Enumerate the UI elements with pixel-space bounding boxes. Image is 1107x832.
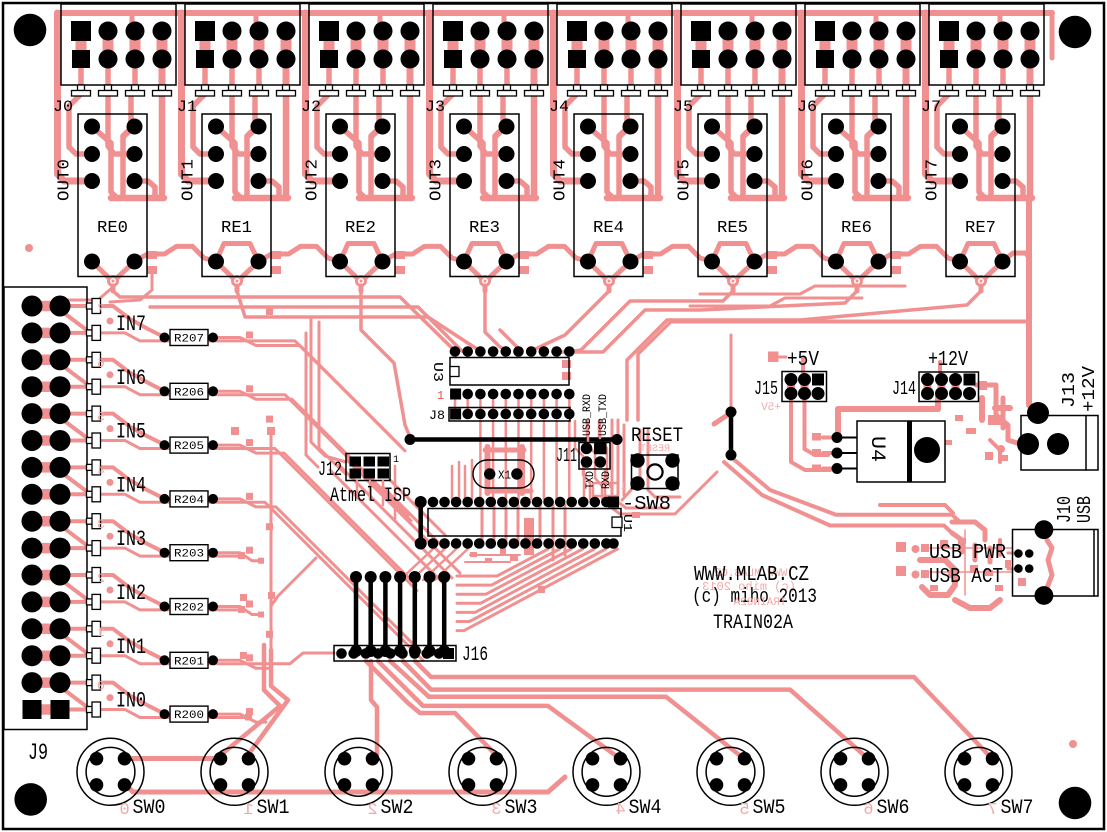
svg-text:0: 0 xyxy=(119,801,129,820)
svg-text:R204: R204 xyxy=(174,495,204,507)
svg-text:IN4: IN4 xyxy=(116,473,146,498)
svg-text:R207: R207 xyxy=(174,334,204,346)
svg-text:J15: J15 xyxy=(754,378,778,400)
svg-text:1: 1 xyxy=(243,801,253,820)
svg-text:R206: R206 xyxy=(174,387,204,399)
svg-text:TXD: TXD xyxy=(585,471,597,489)
svg-text:TRAIN02A: TRAIN02A xyxy=(733,597,786,609)
svg-text:J12: J12 xyxy=(318,459,342,482)
svg-text:RE6: RE6 xyxy=(841,219,872,238)
svg-text:+5V: +5V xyxy=(761,402,781,414)
svg-text:J0: J0 xyxy=(53,98,73,116)
svg-text:3: 3 xyxy=(491,801,501,820)
svg-text:6: 6 xyxy=(863,801,873,820)
svg-text:RESET: RESET xyxy=(640,444,670,455)
svg-text:R201: R201 xyxy=(174,656,204,668)
svg-text:R203: R203 xyxy=(174,549,204,561)
svg-text:1: 1 xyxy=(393,455,399,466)
svg-text:IN7: IN7 xyxy=(116,312,146,337)
svg-text:IN6: IN6 xyxy=(116,366,146,391)
svg-text:SW7: SW7 xyxy=(1001,797,1034,820)
svg-text:2: 2 xyxy=(367,801,377,820)
svg-text:R202: R202 xyxy=(174,603,204,615)
svg-text:R205: R205 xyxy=(174,441,204,453)
svg-text:TRAIN02A: TRAIN02A xyxy=(713,612,793,635)
svg-text:OUT4: OUT4 xyxy=(552,159,571,201)
svg-text:-SW8: -SW8 xyxy=(622,493,671,515)
svg-text:IN1: IN1 xyxy=(116,635,146,660)
svg-text:USB_TXD: USB_TXD xyxy=(598,394,610,436)
svg-text:R200: R200 xyxy=(174,710,204,722)
svg-text:SW6: SW6 xyxy=(877,797,910,820)
svg-text:J7: J7 xyxy=(921,98,941,116)
svg-text:SW1: SW1 xyxy=(257,797,290,820)
svg-text:USB ACT: USB ACT xyxy=(929,566,1003,589)
svg-text:J10: J10 xyxy=(1054,496,1076,523)
svg-text:2: 2 xyxy=(97,571,105,586)
svg-text:SW5: SW5 xyxy=(753,797,786,820)
svg-text:SW0: SW0 xyxy=(133,797,166,820)
svg-text:+12V: +12V xyxy=(1080,366,1100,412)
svg-text:RE3: RE3 xyxy=(469,219,500,238)
svg-text:USB_RXD: USB_RXD xyxy=(582,394,594,436)
svg-text:J8: J8 xyxy=(429,408,445,423)
svg-text:RE7: RE7 xyxy=(965,219,996,238)
svg-text:1: 1 xyxy=(97,625,105,640)
svg-text:J11: J11 xyxy=(556,445,577,467)
svg-text:7: 7 xyxy=(987,801,997,820)
svg-text:5: 5 xyxy=(739,801,749,820)
svg-text:OUT6: OUT6 xyxy=(800,159,819,201)
svg-text:J14: J14 xyxy=(892,378,916,400)
svg-text:USB: USB xyxy=(1074,496,1096,523)
svg-text:U3: U3 xyxy=(429,362,445,382)
svg-text:RE4: RE4 xyxy=(593,219,624,238)
svg-text:OUT3: OUT3 xyxy=(428,159,447,201)
svg-text:X1: X1 xyxy=(498,470,511,483)
svg-text:IN5: IN5 xyxy=(116,420,146,445)
svg-text:J6: J6 xyxy=(797,98,817,116)
svg-text:4: 4 xyxy=(615,801,625,820)
svg-text:J5: J5 xyxy=(673,98,693,116)
svg-text:J9: J9 xyxy=(28,740,48,766)
svg-text:IN2: IN2 xyxy=(116,581,146,606)
svg-text:RE2: RE2 xyxy=(345,219,376,238)
svg-text:1: 1 xyxy=(621,482,627,493)
svg-text:1: 1 xyxy=(437,389,444,403)
svg-text:OUT1: OUT1 xyxy=(180,159,199,201)
svg-text:RXD: RXD xyxy=(601,471,613,489)
svg-text:IN0: IN0 xyxy=(116,689,146,714)
svg-text:U1: U1 xyxy=(620,514,634,532)
svg-text:SW2: SW2 xyxy=(381,797,414,820)
svg-text:OUT2: OUT2 xyxy=(304,159,323,201)
svg-text:RE5: RE5 xyxy=(717,219,748,238)
svg-text:+12V: +12V xyxy=(928,349,968,372)
svg-text:SW4: SW4 xyxy=(629,797,662,820)
svg-text:RE0: RE0 xyxy=(97,219,128,238)
svg-text:Atmel ISP: Atmel ISP xyxy=(330,485,411,508)
svg-text:OUT5: OUT5 xyxy=(676,159,695,201)
svg-text:OUT7: OUT7 xyxy=(924,159,943,201)
svg-text:J4: J4 xyxy=(549,98,569,116)
svg-text:J13: J13 xyxy=(1060,372,1080,408)
svg-text:SW3: SW3 xyxy=(505,797,538,820)
svg-text:7: 7 xyxy=(97,302,105,317)
svg-text:4: 4 xyxy=(97,463,105,478)
svg-text:5: 5 xyxy=(97,410,105,425)
svg-text:6: 6 xyxy=(97,356,105,371)
svg-text:0: 0 xyxy=(97,679,105,694)
svg-text:+5V: +5V xyxy=(787,349,819,372)
svg-text:J16: J16 xyxy=(462,644,488,667)
svg-text:RE1: RE1 xyxy=(221,219,252,238)
svg-text:OUT0: OUT0 xyxy=(56,159,75,201)
svg-text:U4: U4 xyxy=(865,436,888,462)
svg-text:3: 3 xyxy=(97,517,105,532)
svg-text:IN3: IN3 xyxy=(116,527,146,552)
svg-text:USB PWR: USB PWR xyxy=(929,542,1006,565)
svg-text:J3: J3 xyxy=(425,98,445,116)
svg-text:J1: J1 xyxy=(177,98,197,116)
svg-text:J2: J2 xyxy=(301,98,321,116)
